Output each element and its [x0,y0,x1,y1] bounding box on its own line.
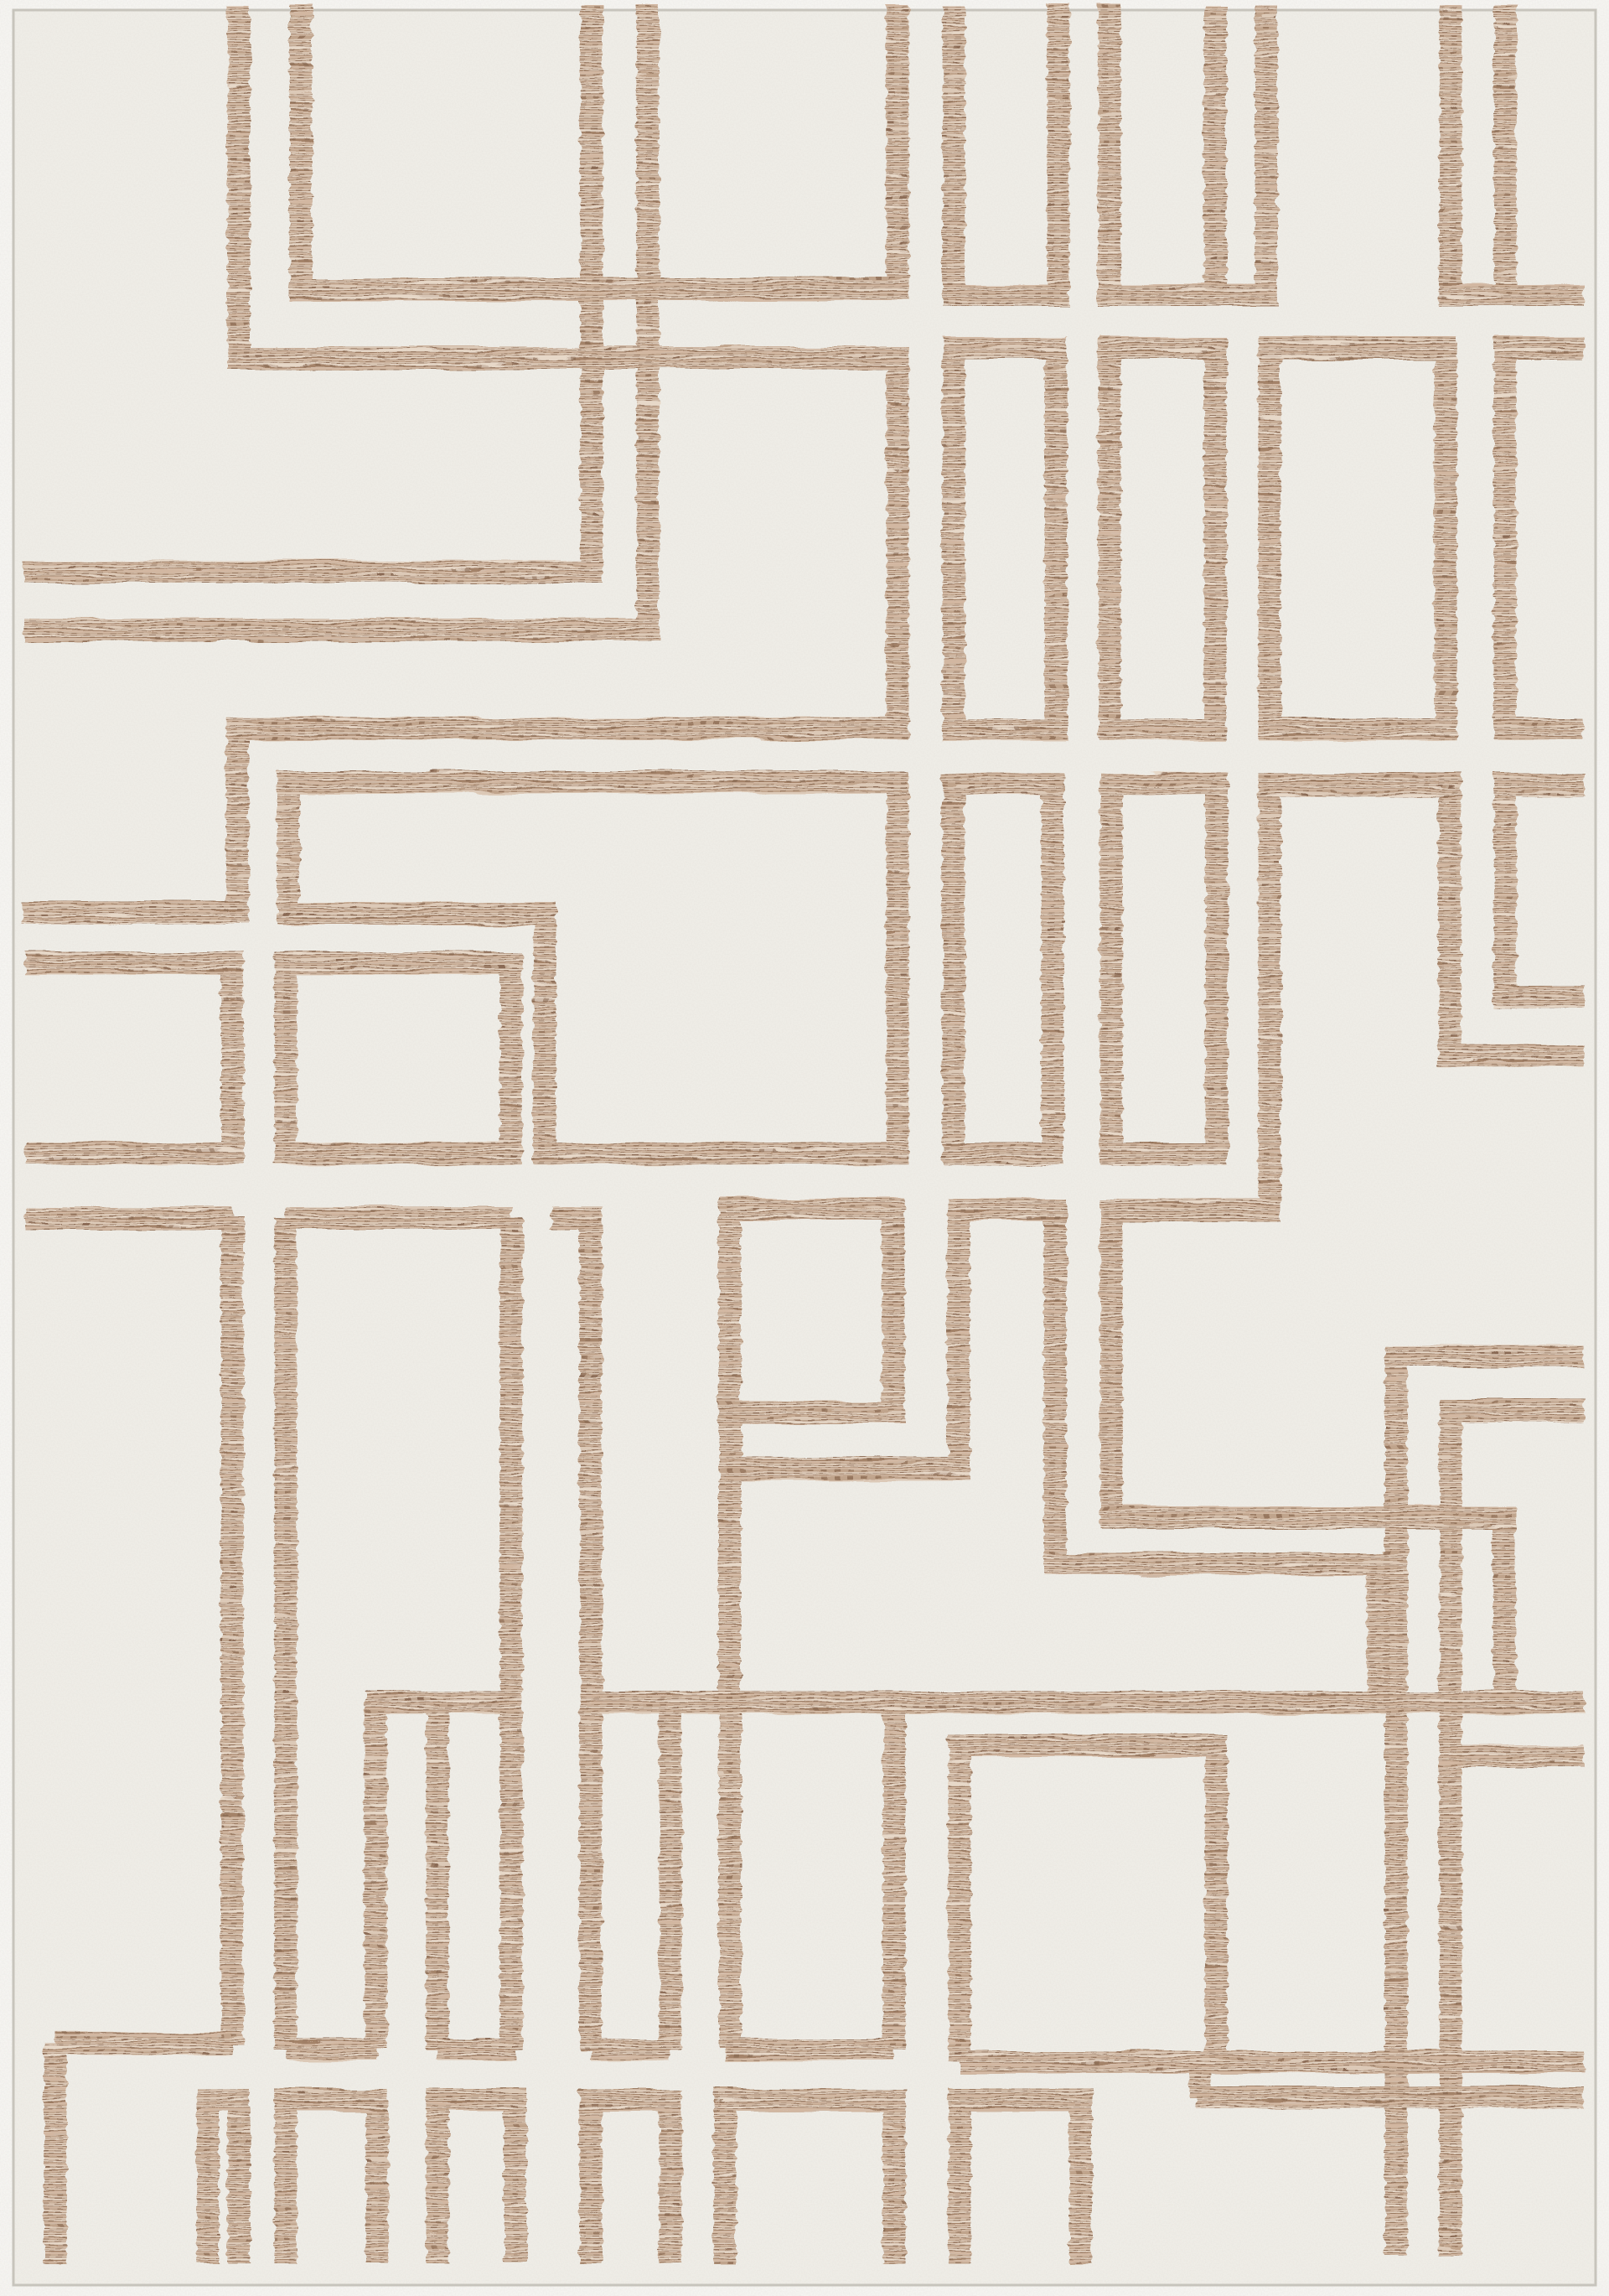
rug-photo [0,0,1609,2296]
rug-graphic [0,0,1609,2296]
